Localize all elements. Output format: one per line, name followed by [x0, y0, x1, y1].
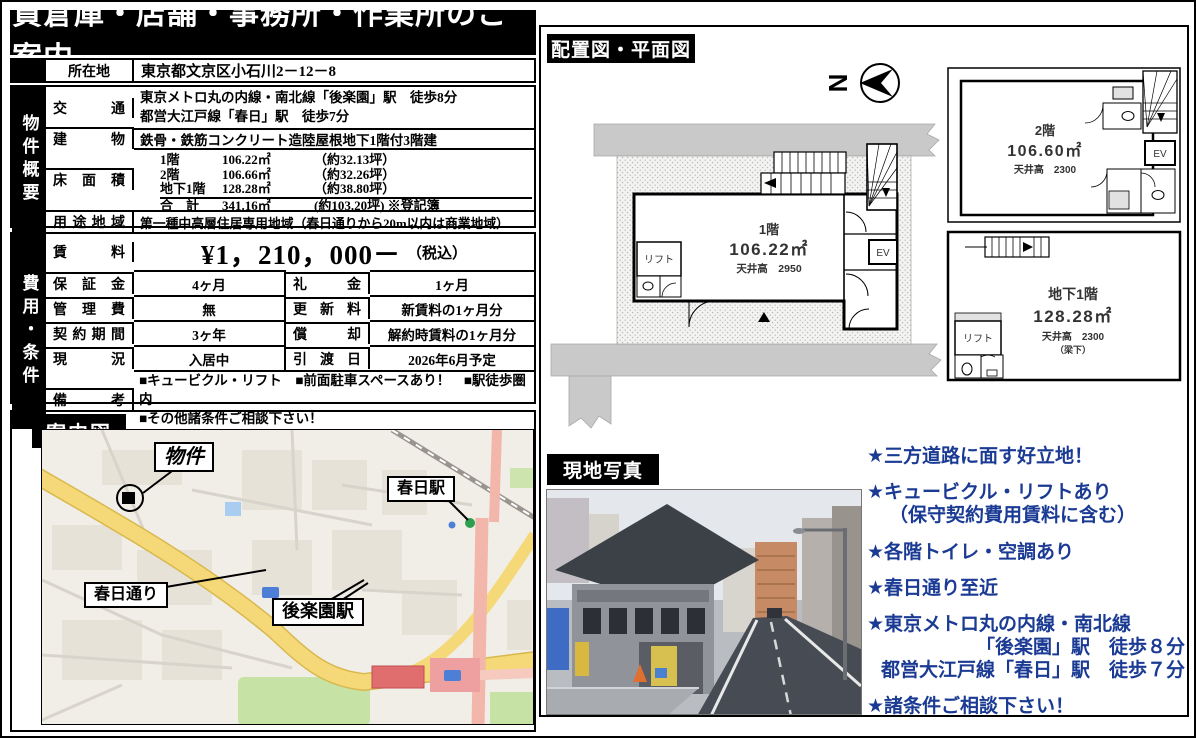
map-drawing	[42, 430, 534, 725]
overview-side-label: 物件概要	[12, 87, 46, 232]
highlight-item: ★三方道路に面す好立地！	[867, 445, 1185, 468]
zoning-value: 第一種中高層住居専用地域（春日通りから20m以内は商業地域）	[134, 210, 534, 232]
highlight-subline: 都営大江戸線「春日」駅 徒歩７分	[867, 659, 1185, 682]
access-line1: 東京メトロ丸の内線・南北線「後楽園」駅 徒歩8分	[140, 89, 457, 107]
plan-b1-area: 128.28㎡	[1033, 306, 1113, 326]
highlight-line: ★春日通り至近	[867, 577, 1185, 600]
highlight-item: ★キュービクル・リフトあり （保守契約費用賃料に含む）	[867, 481, 1185, 527]
status-value: 入居中	[134, 345, 286, 370]
renewal-fee-label: 更新料	[286, 297, 370, 319]
fa-area: 128.28㎡	[222, 182, 314, 197]
site-photo	[546, 489, 862, 715]
building-label: 建物	[46, 127, 134, 149]
map-korakuen-station-label: 後楽園駅	[272, 598, 364, 626]
notes-label: 備考	[46, 388, 134, 410]
highlight-item: ★各階トイレ・空調あり	[867, 541, 1185, 564]
mgmt-fee-label: 管理費	[46, 297, 134, 319]
access-line2: 都営大江戸線「春日」駅 徒歩7分	[140, 108, 349, 126]
cost-conditions-table: 費用・条件 賃料 ¥1，210，000－ （税込） 保証金 4ヶ月 礼金 1ヶ月…	[10, 232, 536, 404]
svg-text:リフト: リフト	[963, 334, 993, 345]
fa-floor: 地下1階	[160, 182, 222, 197]
svg-text:N: N	[823, 74, 853, 93]
location-row: 所在地 東京都文京区小石川2－12－8	[10, 58, 536, 83]
highlight-line: ★キュービクル・リフトあり	[867, 481, 1185, 504]
rent-value: ¥1，210，000－ （税込）	[134, 234, 534, 270]
highlight-line: ★東京メトロ丸の内線・南北線	[867, 613, 1185, 636]
location-label: 所在地	[46, 60, 134, 81]
cost-side-label: 費用・条件	[12, 234, 46, 429]
handover-label: 引渡日	[286, 347, 370, 369]
plan-2f-ev: EV	[1145, 141, 1175, 165]
location-value: 東京都文京区小石川2－12－8	[134, 60, 534, 81]
plan-b1-ceiling-note: （梁下）	[1055, 344, 1091, 355]
amortization-value: 解約時賃料の1ヶ月分	[370, 320, 534, 345]
map-park-small	[490, 692, 534, 725]
plan-2f-name: 2階	[1035, 123, 1055, 138]
plans-photo-section: 配置図・平面図 N	[539, 25, 1189, 717]
handover-value: 2026年6月予定	[370, 345, 534, 370]
rent-tax-note: （税込）	[407, 242, 467, 263]
floor-area-line-1f: 1階 106.22㎡ （約32.13坪）	[160, 153, 532, 168]
floor-plan-2f: EV 2階 106.60㎡ 天井高 2300	[945, 65, 1185, 227]
plan-winder-stair	[867, 144, 897, 210]
rent-amount: ¥1，210，000－	[201, 233, 401, 272]
map-kasuga-station-dot2	[449, 522, 456, 529]
map-route-shield-2	[444, 670, 461, 681]
guide-map: 物件 春日駅 春日通り 後楽園駅	[41, 429, 534, 725]
site-photo-label: 現地写真	[547, 454, 659, 485]
highlight-item: ★春日通り至近	[867, 577, 1185, 600]
map-kasuga-street-label: 春日通り	[84, 582, 168, 608]
floor-area-line-b1: 地下1階 128.28㎡ （約38.80坪）	[160, 182, 532, 199]
highlight-item: ★諸条件ご相談下さい！	[867, 695, 1185, 718]
plan-b1-ceiling: 天井高 2300	[1042, 330, 1105, 343]
plan-1f-area: 106.22㎡	[729, 239, 809, 259]
plan-1f-ceiling: 天井高 2950	[736, 262, 802, 275]
notes-line1: ■キュービクル・リフト ■前面駐車スペースあり！ ■駅徒歩圏内	[139, 372, 534, 410]
plan-2f-area: 106.60㎡	[1007, 141, 1082, 160]
key-money-value: 1ヶ月	[370, 270, 534, 295]
plan-1f-name: 1階	[759, 222, 779, 237]
map-station-block	[372, 666, 424, 688]
deposit-label: 保証金	[46, 272, 134, 294]
zoning-label: 用途地域	[46, 210, 134, 232]
plan-1f-ev: EV	[869, 240, 897, 264]
svg-text:EV: EV	[1153, 149, 1167, 160]
status-label: 現況	[46, 347, 134, 369]
access-label: 交通	[46, 98, 134, 118]
flyer-page: 貸倉庫・店舗・事務所・作業所のご案内 所在地 東京都文京区小石川2－12－8 物…	[0, 0, 1196, 738]
fa-floor: 1階	[160, 153, 222, 168]
svg-text:EV: EV	[876, 248, 890, 259]
highlight-subline: 「後楽園」駅 徒歩８分	[867, 636, 1185, 659]
rent-label: 賃料	[46, 242, 134, 262]
highlight-list: ★三方道路に面す好立地！ ★キュービクル・リフトあり （保守契約費用賃料に含む）…	[867, 445, 1185, 732]
highlight-line: ★三方道路に面す好立地！	[867, 445, 1185, 468]
map-property-label: 物件	[154, 442, 214, 472]
term-value: 3ヶ年	[134, 320, 286, 345]
site-photo-drawing	[547, 490, 862, 715]
building-value: 鉄骨・鉄筋コンクリート造陸屋根地下1階付3階建	[134, 128, 534, 148]
amortization-label: 償却	[286, 322, 370, 344]
page-title: 貸倉庫・店舗・事務所・作業所のご案内	[10, 10, 536, 55]
highlight-item: ★東京メトロ丸の内線・南北線 「後楽園」駅 徒歩８分 都営大江戸線「春日」駅 徒…	[867, 613, 1185, 683]
plan-b1-lift: リフト	[955, 313, 1001, 355]
fa-area: 106.66㎡	[222, 168, 314, 183]
plan-b1-wc	[955, 355, 1003, 378]
floor-area-value: 1階 106.22㎡ （約32.13坪） 2階 106.66㎡ （約32.26坪…	[134, 148, 534, 210]
map-route-shield-1	[262, 587, 279, 598]
guide-map-section: 案内図	[10, 410, 536, 732]
map-kasuga-station-label: 春日駅	[387, 476, 455, 502]
floor-plan-1f: EV リフト 1階 106.22㎡ 天井高 2950	[549, 94, 949, 446]
highlight-subline: （保守契約費用賃料に含む）	[867, 504, 1185, 527]
map-water	[225, 502, 241, 516]
property-overview-table: 物件概要 交通 東京メトロ丸の内線・南北線「後楽園」駅 徒歩8分 都営大江戸線「…	[10, 85, 536, 228]
fa-area: 106.22㎡	[222, 153, 314, 168]
floor-area-line-2f: 2階 106.66㎡ （約32.26坪）	[160, 168, 532, 183]
map-green-patch	[510, 468, 534, 488]
svg-text:リフト: リフト	[644, 255, 674, 266]
renewal-fee-value: 新賃料の1ヶ月分	[370, 295, 534, 320]
floor-area-label: 床面積	[46, 168, 134, 190]
floor-plan-label: 配置図・平面図	[547, 34, 695, 63]
plan-b1-name: 地下1階	[1048, 286, 1098, 302]
fa-tsubo: （約32.13坪）	[314, 153, 532, 168]
key-money-label: 礼金	[286, 272, 370, 294]
plan-stairs-top	[761, 152, 846, 194]
fa-tsubo: （約32.26坪）	[314, 168, 532, 183]
deposit-value: 4ヶ月	[134, 270, 286, 295]
term-label: 契約期間	[46, 322, 134, 344]
highlight-line: ★諸条件ご相談下さい！	[867, 695, 1185, 718]
plan-1f-lift: リフト	[637, 242, 681, 297]
fa-floor: 2階	[160, 168, 222, 183]
floor-plan-b1: リフト 地下1階 128.28㎡ 天井高 2300 （梁下）	[945, 229, 1185, 387]
mgmt-fee-value: 無	[134, 295, 286, 320]
plan-2f-stair	[1143, 71, 1177, 133]
access-value: 東京メトロ丸の内線・南北線「後楽園」駅 徒歩8分 都営大江戸線「春日」駅 徒歩7…	[134, 87, 534, 128]
location-side-fill	[12, 60, 46, 81]
plan-2f-ceiling: 天井高 2300	[1014, 163, 1077, 176]
highlight-line: ★各階トイレ・空調あり	[867, 541, 1185, 564]
fa-tsubo: （約38.80坪）	[314, 182, 532, 197]
